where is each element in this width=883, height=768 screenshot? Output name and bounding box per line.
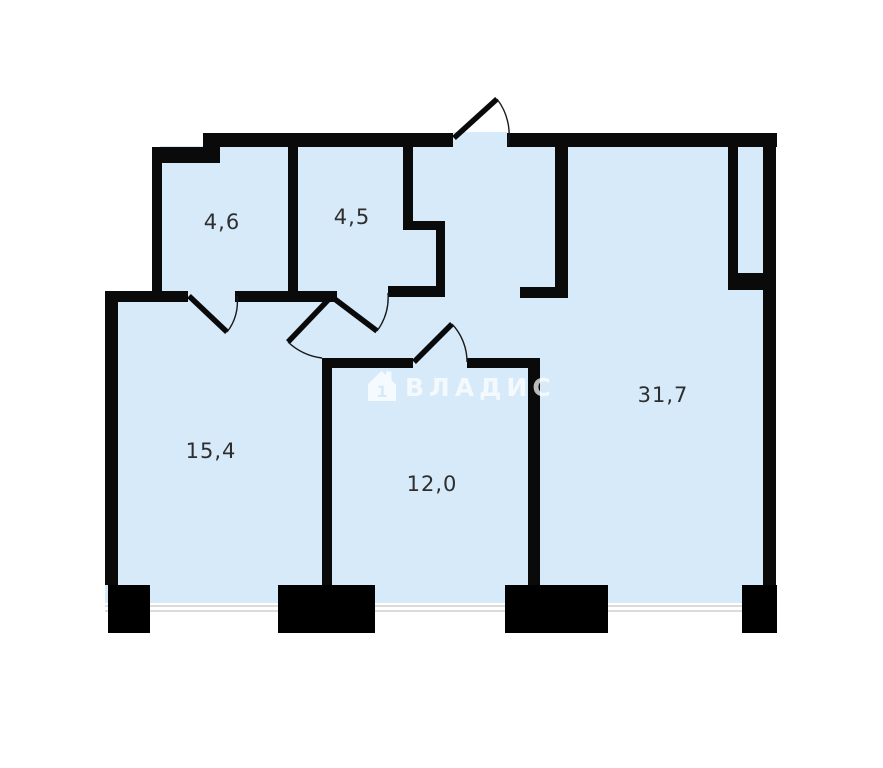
wall-120-left <box>322 358 332 585</box>
top-wall-left-step <box>152 147 220 163</box>
shaft-niche-left-wall <box>728 145 738 290</box>
room-area-label-45: 4,5 <box>334 205 370 229</box>
room-area-label-317: 31,7 <box>638 383 689 407</box>
top-wall-left-of-entrance <box>203 133 453 147</box>
wall-hall-right <box>555 146 568 292</box>
column <box>108 585 150 633</box>
wall-45-nook-step <box>403 221 445 230</box>
wall-between-46-45 <box>288 147 298 302</box>
right-wall <box>763 133 776 585</box>
wall-45-right-lower <box>436 230 445 296</box>
wall-top-of-154-b <box>235 291 337 302</box>
column <box>742 585 777 633</box>
room-area-label-154: 15,4 <box>186 439 237 463</box>
floorplan-drawing: 4,6 4,5 31,7 15,4 12,0 1 ВЛАДИС <box>0 0 883 768</box>
left-wall-lower <box>105 291 118 585</box>
room-area-label-46: 4,6 <box>204 210 240 234</box>
watermark-text: ВЛАДИС <box>405 373 556 402</box>
top-wall-right-of-entrance <box>507 133 777 147</box>
floor-fill <box>105 132 770 603</box>
shaft-niche-bottom-wall <box>728 273 765 290</box>
column <box>505 585 608 633</box>
floorplan-canvas: 4,6 4,5 31,7 15,4 12,0 1 ВЛАДИС <box>0 0 883 768</box>
column <box>278 585 375 633</box>
left-wall-upper <box>152 147 162 302</box>
room-area-label-120: 12,0 <box>407 472 458 496</box>
window-sill-lines <box>105 606 777 611</box>
wall-top-of-154-a <box>105 291 188 302</box>
wall-120-top-left <box>322 358 413 368</box>
house-icon-digit: 1 <box>376 382 387 401</box>
wall-45-right-upper <box>403 147 413 230</box>
